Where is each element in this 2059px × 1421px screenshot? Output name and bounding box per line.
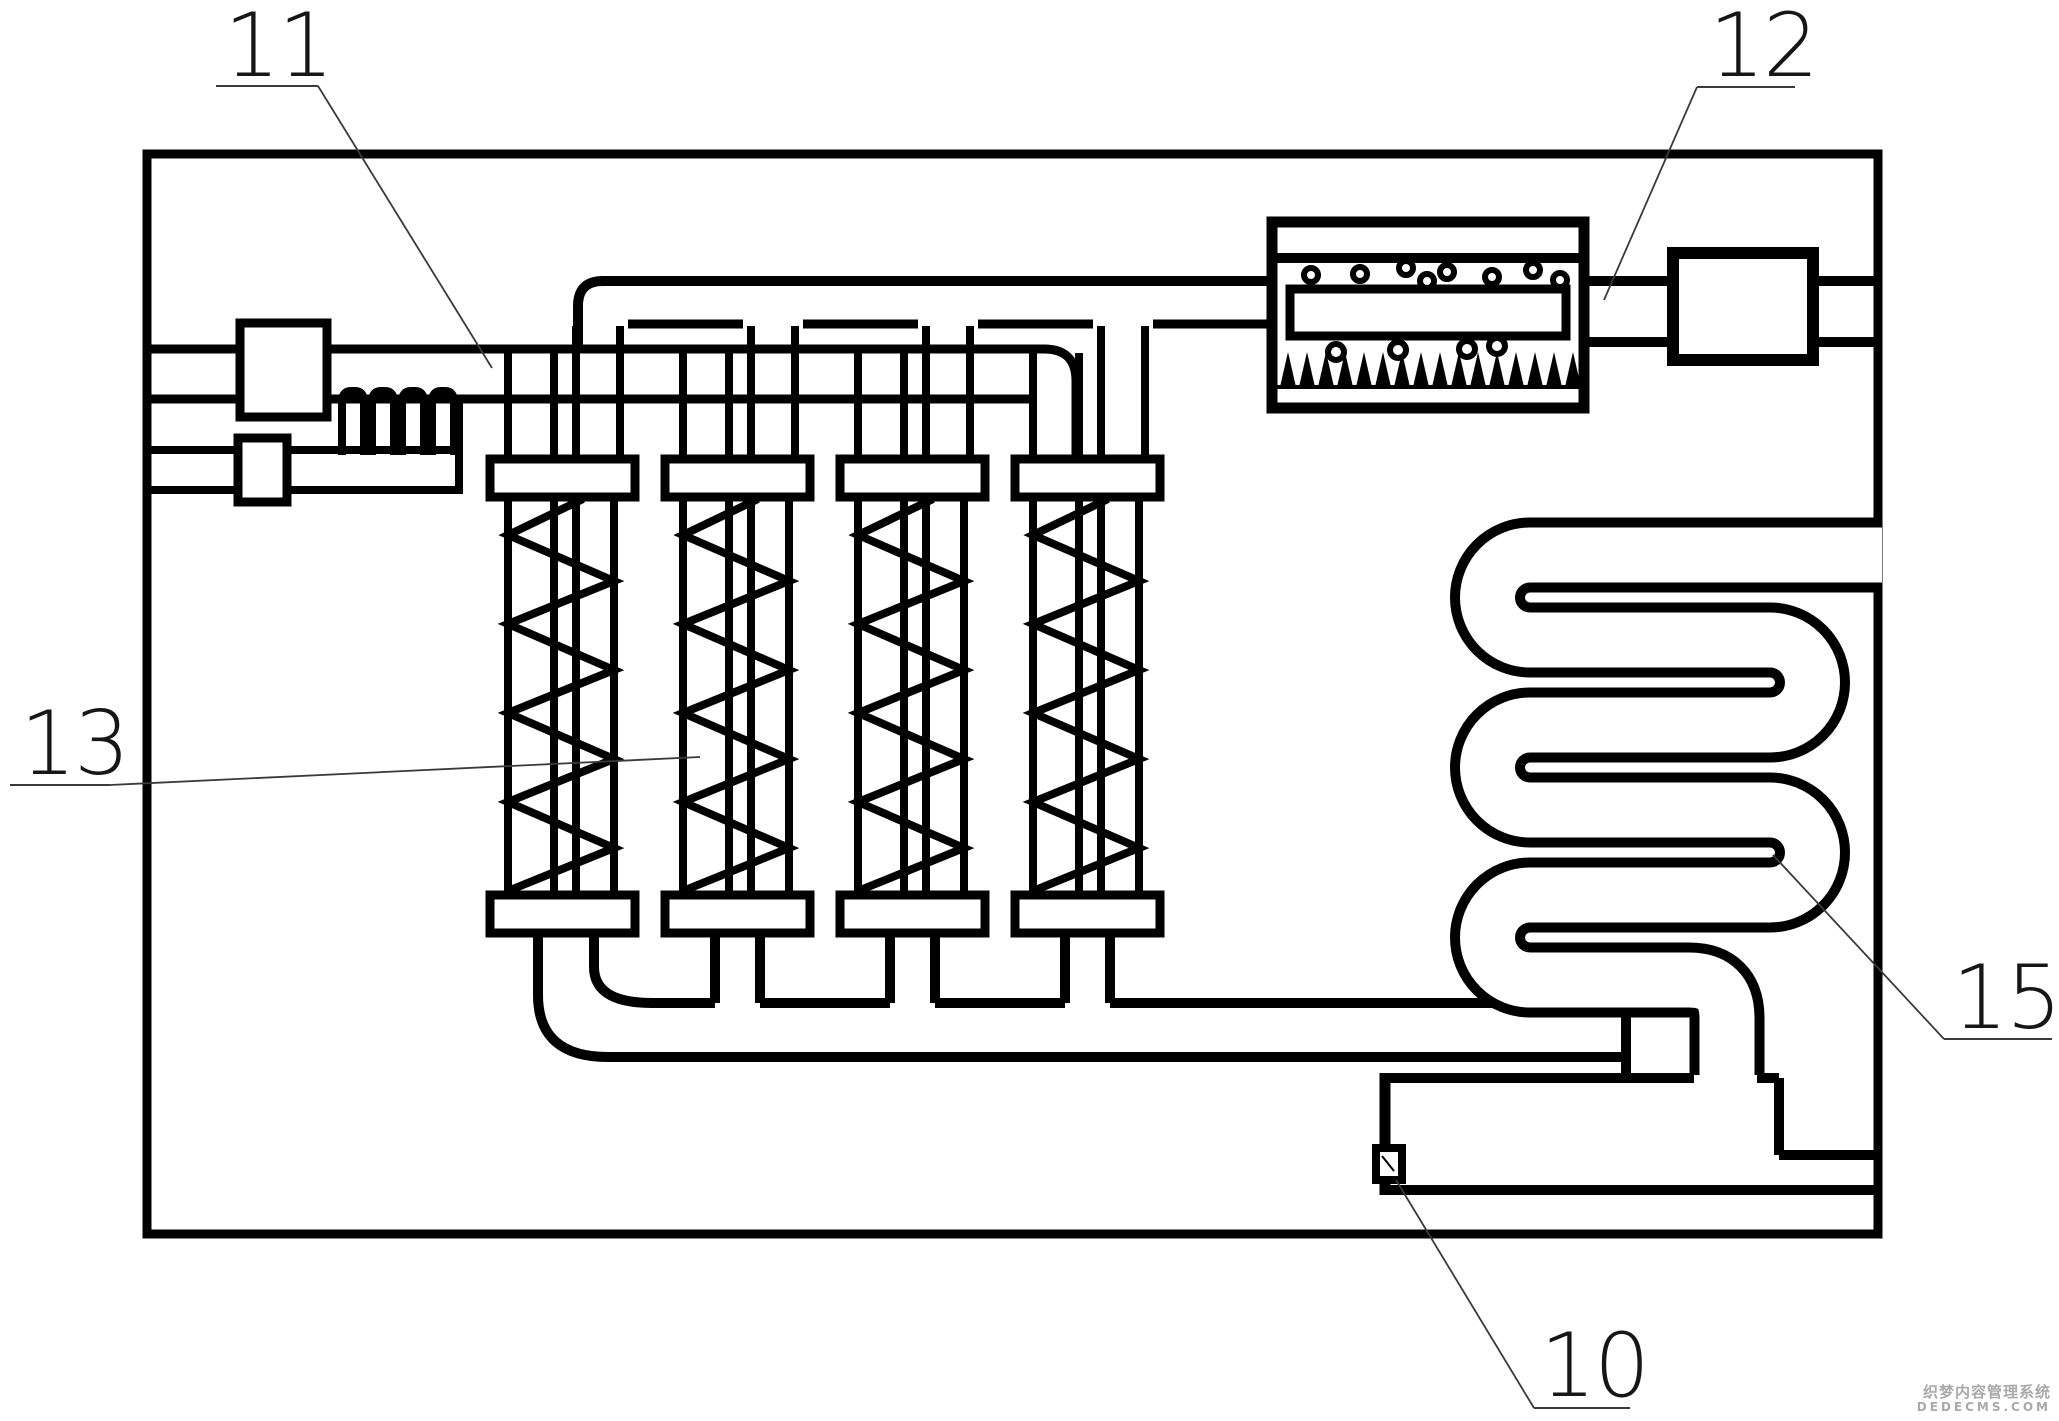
- bubble: [1489, 338, 1505, 354]
- label-12-text: 12: [1709, 0, 1817, 97]
- column-top-plate: [665, 459, 810, 497]
- label-15-text: 15: [1952, 946, 2059, 1049]
- bubble: [1353, 267, 1367, 281]
- bubble: [1390, 342, 1406, 358]
- column-bottom-plate: [490, 895, 635, 933]
- separator-float-plate: [1290, 289, 1566, 336]
- ref-label-10: 10: [1396, 1180, 1648, 1417]
- bubble: [1440, 265, 1454, 279]
- watermark-english: DEDECMS.COM: [1917, 1401, 2051, 1415]
- bubble: [1553, 273, 1567, 287]
- column-auger-spiral: [1033, 499, 1139, 891]
- sensor-box: [1376, 1148, 1402, 1180]
- upper-valve-box: [240, 323, 327, 417]
- ref-label-13: 13: [10, 692, 700, 795]
- column-bottom-plate: [840, 895, 985, 933]
- column-auger-spiral: [858, 499, 964, 891]
- filter-column: [1015, 326, 1160, 1003]
- bubble: [1485, 270, 1499, 284]
- drain-channel: [1385, 1073, 1878, 1195]
- label-15-leader: [1773, 855, 1944, 1039]
- bubble: [1420, 274, 1434, 288]
- bubble: [1459, 341, 1475, 357]
- bubble-separator: [1272, 222, 1584, 408]
- lower-valve-box: [238, 438, 287, 502]
- drain-channel-step: [1757, 1078, 1878, 1155]
- compressor-box: [1673, 253, 1813, 360]
- watermark-chinese: 织梦内容管理系统: [1917, 1384, 2051, 1401]
- label-13-text: 13: [20, 692, 128, 795]
- filter-columns: [490, 326, 1160, 1003]
- filter-column: [490, 326, 635, 933]
- column-top-plate: [1015, 459, 1160, 497]
- main-pipe-top-wall: [327, 349, 1076, 459]
- compressor-piping: [1584, 253, 1878, 360]
- system-diagram: 11 12 13 15 10: [0, 0, 2059, 1421]
- label-11-leader: [318, 86, 492, 368]
- column-bottom-plate: [665, 895, 810, 933]
- label-11-text: 11: [224, 0, 332, 97]
- patent-figure-canvas: 11 12 13 15 10: [0, 0, 2059, 1421]
- label-10-text: 10: [1540, 1314, 1648, 1417]
- column-auger-spiral: [683, 499, 789, 891]
- label-10-leader: [1396, 1180, 1534, 1408]
- column-bottom-plate: [1015, 895, 1160, 933]
- serpentine-coil: [1488, 555, 1883, 1086]
- column-auger-spiral: [508, 499, 614, 891]
- bubble: [1304, 268, 1318, 282]
- filter-column: [840, 326, 985, 1003]
- dedecms-watermark: 织梦内容管理系统 DEDECMS.COM: [1917, 1384, 2051, 1415]
- bubble: [1328, 344, 1344, 360]
- ref-label-11: 11: [216, 0, 492, 368]
- filter-column: [665, 326, 810, 1003]
- column-top-plate: [490, 459, 635, 497]
- bubble: [1399, 261, 1413, 275]
- bubble: [1526, 263, 1540, 277]
- column-top-plate: [840, 459, 985, 497]
